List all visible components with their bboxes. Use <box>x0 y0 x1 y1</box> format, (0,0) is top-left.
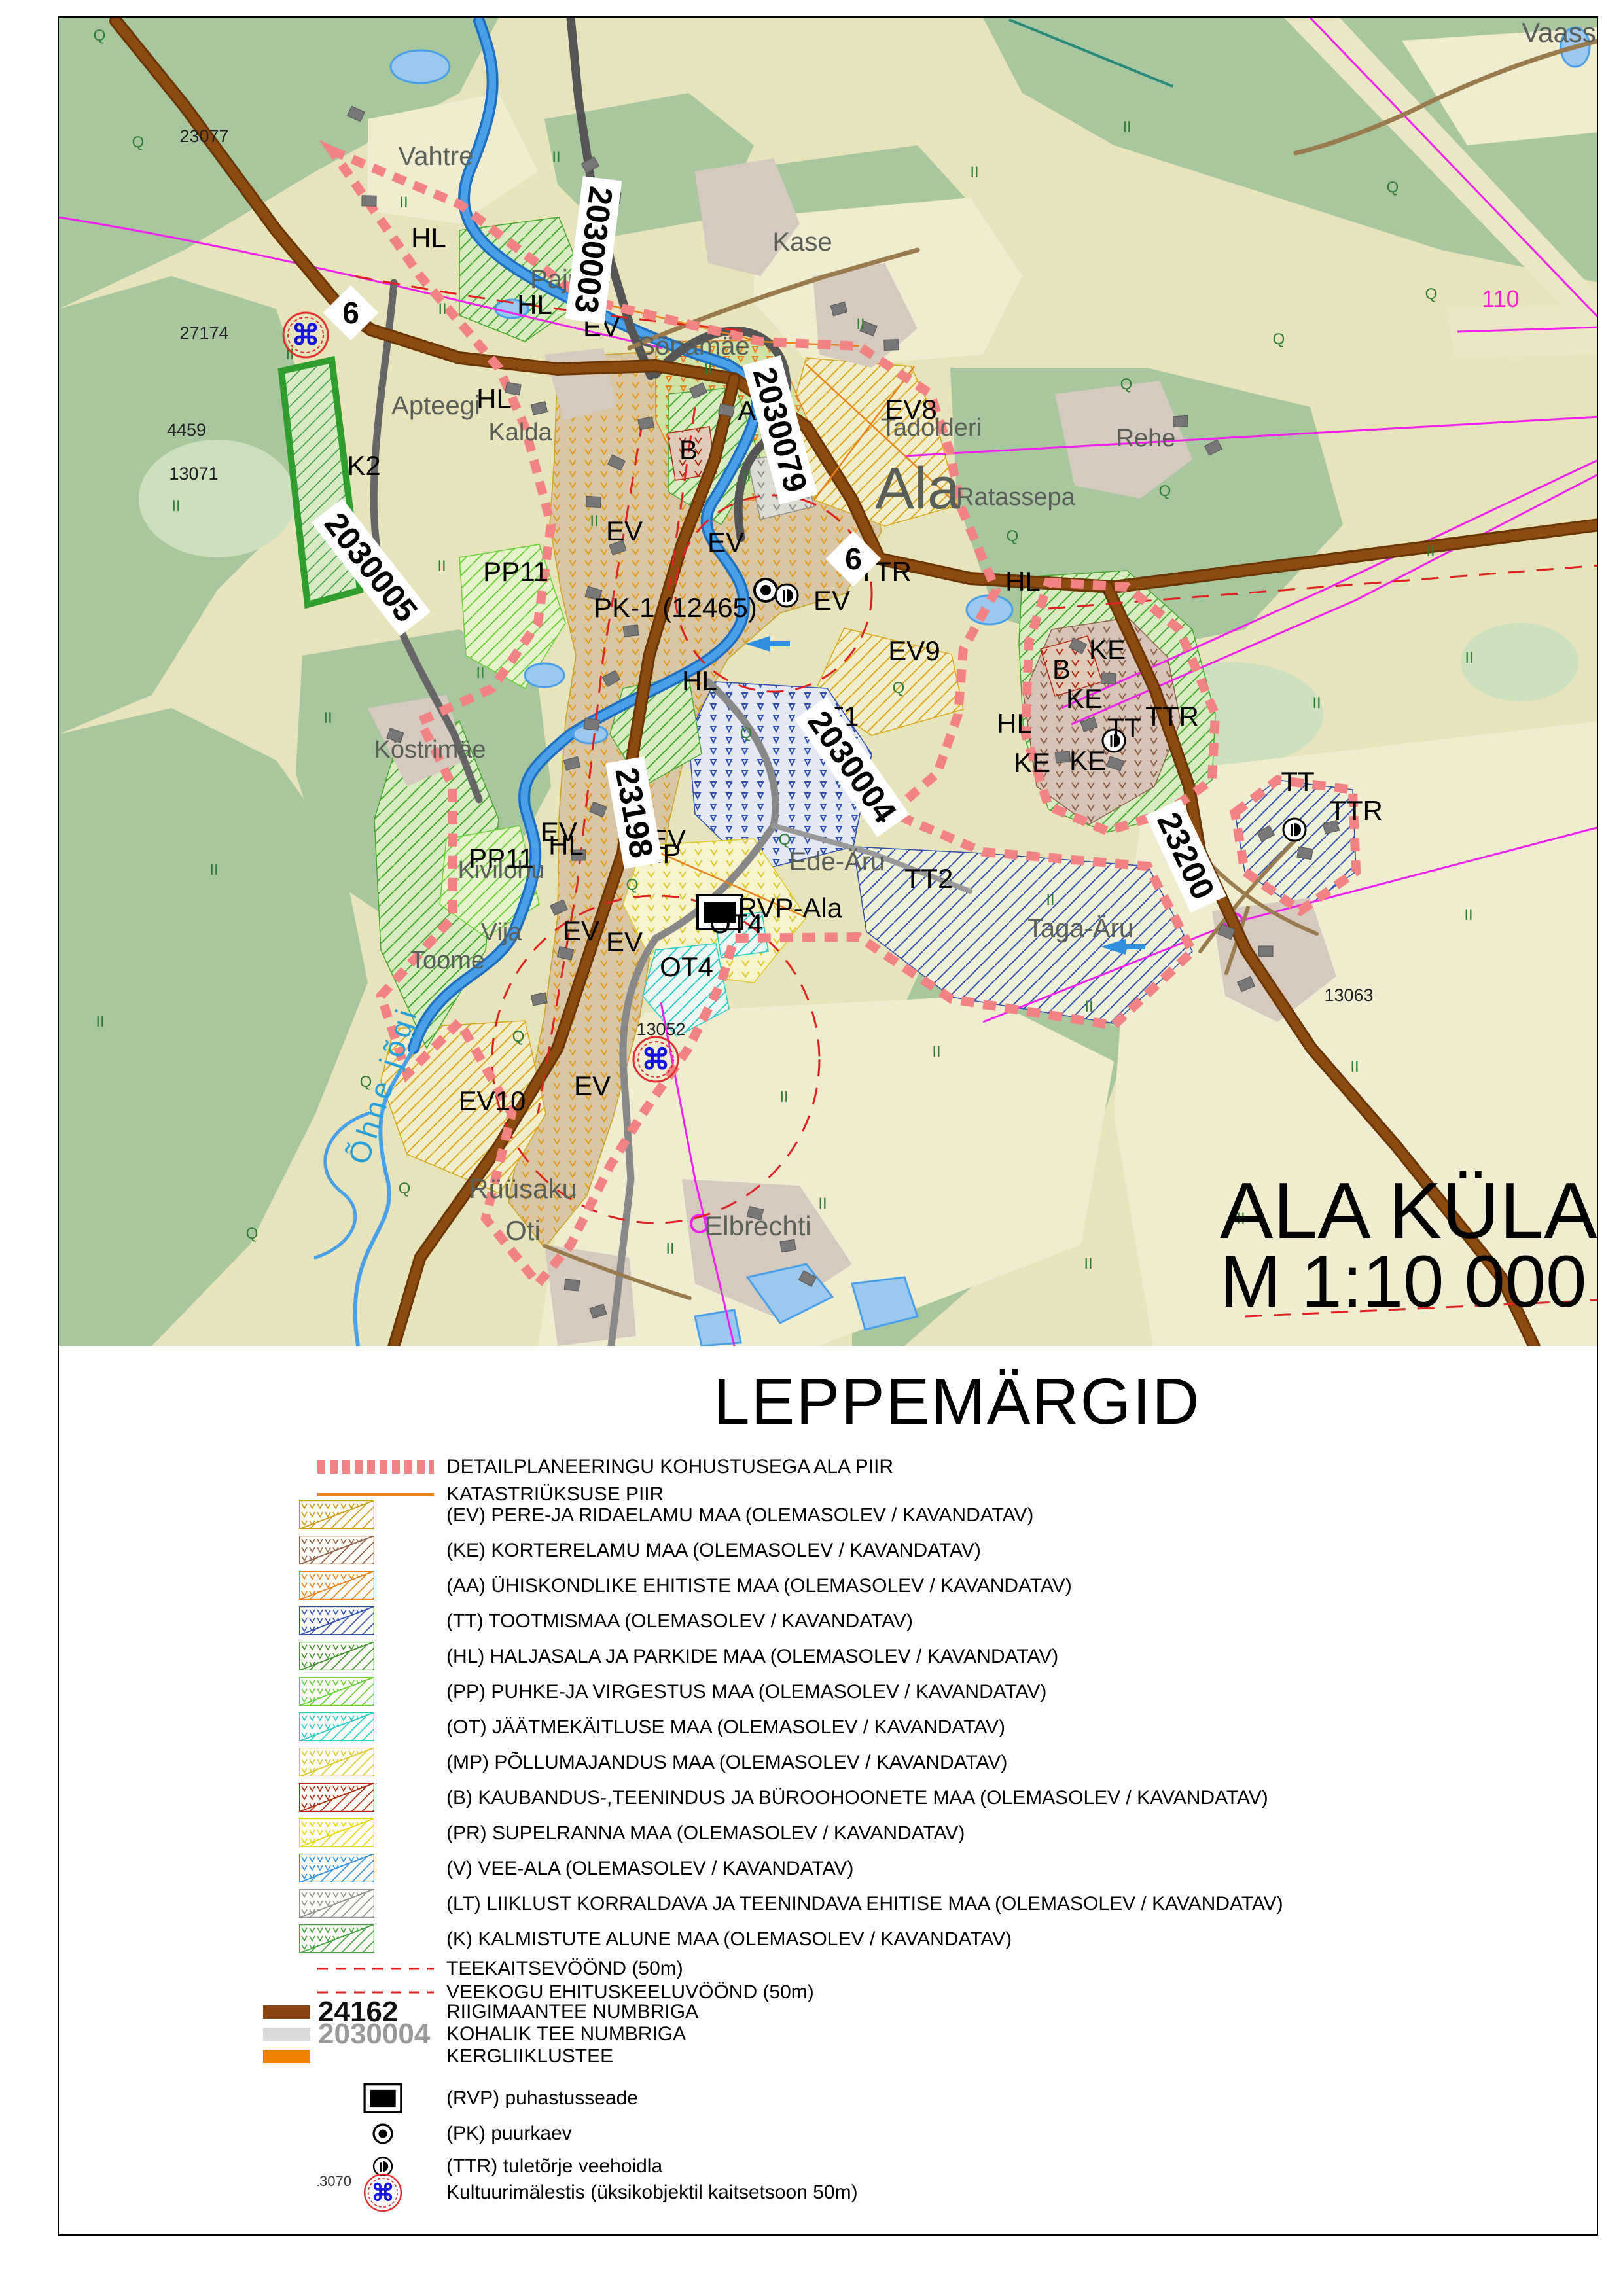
vegetation-glyph: Q <box>1007 527 1019 545</box>
legend-line-item: 2030004KOHALIK TEE NUMBRIGA <box>59 2024 1564 2045</box>
zone-label: PP11 <box>483 556 548 587</box>
cultural-monument-icon: ⌘ <box>365 2174 401 2211</box>
parcel-number: 13052 <box>636 1019 685 1039</box>
zone-label: EV <box>606 927 643 957</box>
legend-zone-swatch <box>299 1571 374 1603</box>
place-label: Rehe <box>1116 425 1176 452</box>
legend-zone-item: (PR) SUPELRANNA MAA (OLEMASOLEV / KAVAND… <box>59 1817 1564 1850</box>
zone-label: HL <box>997 708 1032 739</box>
legend-line-item: VEEKOGU EHITUSKEELUVÖÖND (50m) <box>59 1982 1564 2003</box>
vegetation-glyph: Q <box>399 1180 411 1197</box>
legend-line-item: TEEKAITSEVÖÖND (50m) <box>59 1958 1564 1979</box>
place-label: Rüüsaku <box>469 1173 577 1204</box>
place-label: Elbrechti <box>704 1210 811 1241</box>
zone-label: TT <box>1281 766 1314 797</box>
vegetation-glyph: II <box>970 164 978 181</box>
legend-line-swatch <box>317 1992 434 1994</box>
vegetation-glyph: II <box>932 1043 940 1061</box>
zone-label: OT4 <box>660 951 713 982</box>
zone-label: KE <box>1069 745 1106 776</box>
zone-label: TTR <box>1145 701 1199 732</box>
fire-reservoir-icon <box>1283 819 1306 841</box>
place-label: Kalda <box>488 419 552 446</box>
vegetation-glyph: II <box>323 709 332 727</box>
legend-item-label: (PP) PUHKE-JA VIRGESTUS MAA (OLEMASOLEV … <box>446 1681 1046 1703</box>
legend-zone-item: (OT) JÄÄTMEKÄITLUSE MAA (OLEMASOLEV / KA… <box>59 1711 1564 1744</box>
zone-label: EV <box>707 527 744 557</box>
legend-item-label: DETAILPLANEERINGU KOHUSTUSEGA ALA PIIR <box>446 1456 893 1478</box>
zone-label: KE <box>1014 747 1050 778</box>
legend-zone-swatch <box>299 1642 374 1674</box>
place-label: Kase <box>772 228 832 256</box>
plan-sheet: QIIIIQIIIIQIIIIQIIIIQIIIIQIIIIQIIIIQIIII… <box>58 16 1598 2236</box>
zone-label: EV10 <box>459 1086 526 1116</box>
legend-symbol-item: ⌘13070Kultuurimälestis (üksikobjektil ka… <box>59 2172 1564 2214</box>
vegetation-glyph: II <box>1464 906 1472 924</box>
zone-label: TT <box>1107 713 1141 743</box>
legend-zone-item: (MP) PÕLLUMAJANDUS MAA (OLEMASOLEV / KAV… <box>59 1746 1564 1779</box>
vegetation-glyph: II <box>1084 998 1093 1016</box>
vegetation-glyph: II <box>742 467 751 485</box>
vegetation-glyph: II <box>1046 891 1054 909</box>
powerline-label: 110 <box>1482 285 1519 312</box>
zone-label: KE <box>1089 634 1126 665</box>
zone-label: EV8 <box>885 394 936 425</box>
svg-text:6: 6 <box>845 542 862 576</box>
borewell-icon <box>755 579 777 601</box>
legend-zone-swatch <box>299 1606 374 1638</box>
legend-item-label: (RVP) puhastusseade <box>446 2087 638 2110</box>
legend-item-label: (TT) TOOTMISMAA (OLEMASOLEV / KAVANDATAV… <box>446 1610 913 1633</box>
legend-zone-item: (HL) HALJASALA JA PARKIDE MAA (OLEMASOLE… <box>59 1640 1564 1673</box>
vegetation-glyph: II <box>438 300 446 318</box>
legend-zone-item: (AA) ÜHISKONDLIKE EHITISTE MAA (OLEMASOL… <box>59 1570 1564 1602</box>
zone-label: K2 <box>347 450 380 481</box>
legend-title: LEPPEMÄRGID <box>713 1364 1237 1439</box>
zone-label: KE <box>1066 683 1103 714</box>
vegetation-glyph: II <box>856 315 865 333</box>
place-label: Sõnamäe <box>637 332 749 361</box>
zone-label: PP11 <box>469 843 534 874</box>
zone-label: EV <box>606 516 643 546</box>
vegetation-glyph: Q <box>1159 482 1171 500</box>
svg-text:6: 6 <box>342 296 359 330</box>
zone-label: HL <box>411 222 446 253</box>
legend-item-label: (K) KALMISTUTE ALUNE MAA (OLEMASOLEV / K… <box>446 1928 1012 1951</box>
parcel-number: 23077 <box>179 126 228 146</box>
place-label: Ala <box>875 456 961 521</box>
place-label: Ratassepa <box>956 484 1076 511</box>
legend-item-label: (KE) KORTERELAMU MAA (OLEMASOLEV / KAVAN… <box>446 1540 981 1562</box>
svg-text:⌘: ⌘ <box>371 2179 395 2206</box>
place-label: Ede-Äru <box>789 847 885 876</box>
legend-zone-swatch <box>299 1783 374 1815</box>
legend-item-label: (HL) HALJASALA JA PARKIDE MAA (OLEMASOLE… <box>446 1646 1058 1668</box>
zone-label: EV <box>813 585 850 616</box>
vegetation-glyph: II <box>476 664 484 682</box>
place-label: Vahtre <box>399 142 474 171</box>
zone-label: TT2 <box>904 863 954 894</box>
legend-zone-item: (EV) PERE-JA RIDAELAMU MAA (OLEMASOLEV /… <box>59 1499 1564 1532</box>
vegetation-glyph: Q <box>1273 330 1285 348</box>
legend-zone-item: (TT) TOOTMISMAA (OLEMASOLEV / KAVANDATAV… <box>59 1605 1564 1638</box>
legend-item-label: (EV) PERE-JA RIDAELAMU MAA (OLEMASOLEV /… <box>446 1504 1033 1527</box>
zone-label: HL <box>476 383 512 414</box>
vegetation-glyph: II <box>1122 118 1131 136</box>
zone-label: EV9 <box>888 635 940 666</box>
legend-zone-item: (K) KALMISTUTE ALUNE MAA (OLEMASOLEV / K… <box>59 1923 1564 1956</box>
zone-label: B <box>679 434 698 465</box>
legend-item-label: RIIGIMAANTEE NUMBRIGA <box>446 2001 698 2023</box>
legend-boundary-item: DETAILPLANEERINGU KOHUSTUSEGA ALA PIIR <box>59 1456 1564 1478</box>
legend-line-item: KERGLIIKLUSTEE <box>59 2046 1564 2067</box>
legend-symbol-swatch: ⌘13070 <box>317 2172 422 2217</box>
place-label: Oti <box>505 1215 541 1246</box>
legend-zone-item: (B) KAUBANDUS-,TEENINDUS JA BÜROOHOONETE… <box>59 1782 1564 1814</box>
map: QIIIIQIIIIQIIIIQIIIIQIIIIQIIIIQIIIIQIIII… <box>59 18 1598 1346</box>
parcel-number: 13071 <box>169 464 218 484</box>
zone-label: RVP-Ala <box>738 892 843 923</box>
zone-label: PK-1 (12465) <box>594 592 757 623</box>
vegetation-glyph: II <box>399 194 408 211</box>
treatment-plant-icon <box>365 2085 401 2113</box>
legend-zone-swatch <box>299 1536 374 1568</box>
vegetation-glyph: Q <box>512 1028 525 1046</box>
legend-zone-item: (KE) KORTERELAMU MAA (OLEMASOLEV / KAVAN… <box>59 1534 1564 1567</box>
zone-label: EV <box>541 817 577 847</box>
borewell-icon <box>374 2125 392 2143</box>
vegetation-glyph: Q <box>94 27 106 44</box>
place-label: Taga-Äru <box>1027 914 1133 943</box>
vegetation-glyph: II <box>1350 1058 1359 1076</box>
vegetation-glyph: Q <box>740 724 753 742</box>
legend-line-swatch <box>263 2028 310 2041</box>
vegetation-glyph: II <box>666 1240 674 1258</box>
parcel-number: 13063 <box>1324 985 1373 1005</box>
zone-label: HL <box>517 289 552 320</box>
zone-label: HL <box>1005 566 1041 597</box>
place-label: Apteegi <box>391 391 480 420</box>
zone-label: HL <box>682 665 717 696</box>
legend-swatch <box>317 1493 434 1496</box>
zone-label: EV <box>563 915 599 946</box>
legend-item-label: (V) VEE-ALA (OLEMASOLEV / KAVANDATAV) <box>446 1858 853 1880</box>
legend-zone-swatch <box>299 1889 374 1921</box>
legend-zone-item: (PP) PUHKE-JA VIRGESTUS MAA (OLEMASOLEV … <box>59 1676 1564 1708</box>
vegetation-glyph: Q <box>1425 285 1438 303</box>
legend-item-label: (LT) LIIKLUST KORRALDAVA JA TEENINDAVA E… <box>446 1893 1283 1915</box>
place-label: Köstrimäe <box>374 736 486 764</box>
svg-text:⌘: ⌘ <box>641 1044 670 1076</box>
vegetation-glyph: Q <box>626 876 639 894</box>
vegetation-glyph: II <box>590 512 598 530</box>
legend-item-label: TEEKAITSEVÖÖND (50m) <box>446 1958 683 1980</box>
legend-zone-swatch <box>299 1854 374 1886</box>
legend-line-item: 24162RIIGIMAANTEE NUMBRIGA <box>59 2002 1564 2022</box>
place-label: Vaass <box>1522 18 1596 48</box>
vegetation-glyph: Q <box>1120 376 1133 393</box>
vegetation-glyph: Q <box>246 1225 259 1243</box>
legend-line-swatch <box>317 1968 434 1970</box>
legend-item-label: KOHALIK TEE NUMBRIGA <box>446 2023 686 2045</box>
legend-item-label: (OT) JÄÄTMEKÄITLUSE MAA (OLEMASOLEV / KA… <box>446 1716 1005 1739</box>
vegetation-glyph: II <box>1426 542 1435 560</box>
vegetation-glyph: II <box>1465 649 1473 667</box>
legend-item-label: (AA) ÜHISKONDLIKE EHITISTE MAA (OLEMASOL… <box>446 1575 1072 1597</box>
vegetation-glyph: Q <box>1387 179 1399 196</box>
place-label: Toome <box>410 947 485 974</box>
legend-item-label: (B) KAUBANDUS-,TEENINDUS JA BÜROOHOONETE… <box>446 1787 1268 1809</box>
place-label: Vija <box>481 919 523 946</box>
vegetation-glyph: Q <box>132 133 145 151</box>
legend-zone-swatch <box>299 1924 374 1956</box>
vegetation-glyph: II <box>704 361 712 378</box>
parcel-number: 27174 <box>179 323 228 343</box>
vegetation-glyph: II <box>779 1088 788 1106</box>
map-scale: M 1:10 000 <box>1220 1241 1586 1322</box>
legend-symbol-number: 13070 <box>317 2173 351 2189</box>
legend-item-label: (PK) puurkaev <box>446 2123 572 2145</box>
vegetation-glyph: II <box>209 861 218 879</box>
vegetation-glyph: Q <box>779 831 791 849</box>
legend-item-label: VEEKOGU EHITUSKEELUVÖÖND (50m) <box>446 1981 814 2004</box>
legend-item-label: KERGLIIKLUSTEE <box>446 2045 613 2068</box>
zone-label: EV <box>574 1070 611 1101</box>
parcel-number: 4459 <box>167 420 206 440</box>
legend-zone-item: (V) VEE-ALA (OLEMASOLEV / KAVANDATAV) <box>59 1852 1564 1885</box>
vegetation-glyph: Q <box>893 679 905 697</box>
legend: LEPPEMÄRGID DETAILPLANEERINGU KOHUSTUSEG… <box>59 1346 1598 2236</box>
zone-label: TTR <box>1329 795 1383 826</box>
vegetation-glyph: II <box>171 497 180 515</box>
fire-reservoir-icon <box>776 584 798 607</box>
vegetation-glyph: II <box>552 149 560 166</box>
legend-zone-swatch <box>299 1748 374 1780</box>
legend-item-label: Kultuurimälestis (üksikobjektil kaitsets… <box>446 2181 858 2204</box>
svg-text:⌘: ⌘ <box>291 319 320 351</box>
legend-item-label: (PR) SUPELRANNA MAA (OLEMASOLEV / KAVAND… <box>446 1822 965 1845</box>
legend-zone-swatch <box>299 1712 374 1744</box>
vegetation-glyph: II <box>1312 694 1321 712</box>
vegetation-glyph: II <box>818 1195 827 1212</box>
vegetation-glyph: II <box>437 557 446 575</box>
zone-label: B <box>1052 654 1071 684</box>
map-canvas: QIIIIQIIIIQIIIIQIIIIQIIIIQIIIIQIIIIQIIII… <box>59 18 1598 1346</box>
legend-zone-swatch <box>299 1500 374 1532</box>
vegetation-glyph: II <box>96 1013 104 1031</box>
legend-line-swatch <box>263 2050 310 2063</box>
legend-zone-item: (LT) LIIKLUST KORRALDAVA JA TEENINDAVA E… <box>59 1888 1564 1920</box>
legend-line-swatch <box>263 2005 310 2019</box>
legend-swatch <box>317 1460 434 1474</box>
legend-item-label: (MP) PÕLLUMAJANDUS MAA (OLEMASOLEV / KAV… <box>446 1752 1007 1774</box>
vegetation-glyph: II <box>1084 1255 1092 1273</box>
legend-zone-swatch <box>299 1677 374 1709</box>
legend-zone-swatch <box>299 1818 374 1850</box>
